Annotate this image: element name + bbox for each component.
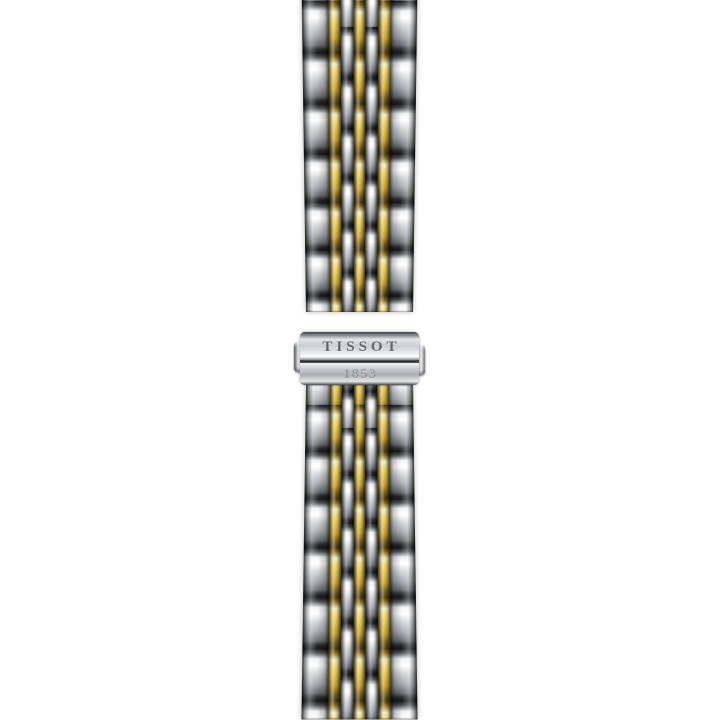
bracelet-upper-strap: [301, 0, 417, 312]
steel-outer-link-column-left: [301, 385, 330, 719]
product-photo-watch-bracelet: TISSOT 1853: [0, 0, 720, 720]
steel-outer-link-column-right: [389, 385, 418, 719]
steel-inner-link-column-left: [340, 385, 353, 719]
clasp-year-engraving: 1853: [342, 366, 378, 382]
steel-inner-link-column-left: [340, 0, 353, 312]
steel-outer-link-column-left: [301, 0, 330, 312]
gold-link-column-center: [353, 0, 366, 312]
clasp-lower-plate: 1853: [300, 363, 419, 385]
clasp-brand-engraving: TISSOT: [318, 339, 400, 356]
steel-outer-link-column-right: [389, 0, 418, 312]
deployant-clasp: TISSOT 1853: [300, 332, 419, 385]
clasp-upper-plate: TISSOT: [300, 332, 419, 360]
clasp-cover-plate: TISSOT 1853: [300, 332, 419, 385]
gold-link-column-center: [353, 385, 366, 719]
bracelet-lower-strap: [301, 385, 417, 719]
